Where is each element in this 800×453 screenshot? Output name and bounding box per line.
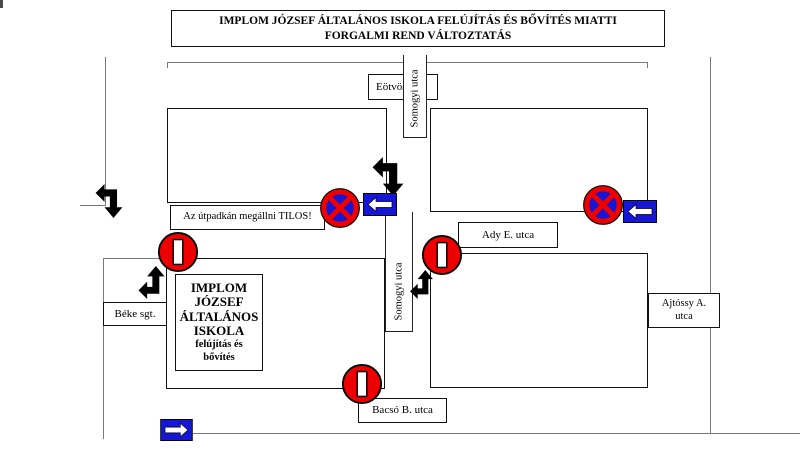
street-label-ady-text: Ady E. utca <box>482 229 534 242</box>
road-line-upperleft-vertical <box>105 57 106 205</box>
turn-arrow-left-down-icon <box>371 157 405 196</box>
no-stopping-sign-icon <box>320 188 360 228</box>
direction-left-sign-icon <box>623 200 657 223</box>
school-label-box: IMPLOM JÓZSEF ÁLTALÁNOS ISKOLA felújítás… <box>175 274 263 371</box>
street-label-ajtossy: Ajtóssy A. utca <box>648 293 720 328</box>
road-line-beke-vertical <box>103 258 104 439</box>
page-title-text: IMPLOM JÓZSEF ÁLTALÁNOS ISKOLA FELÚJÍTÁS… <box>186 14 650 44</box>
direction-left-sign-icon <box>363 193 397 216</box>
direction-right-sign-icon <box>160 419 193 441</box>
road-somogyi-lower-label: Somogyi utca <box>385 250 413 332</box>
no-entry-sign-icon <box>421 234 463 276</box>
street-label-somogyi-upper-text: Somogyi utca <box>410 69 421 127</box>
road-line-bottom <box>193 433 800 434</box>
street-label-ajtossy-line2: utca <box>675 311 693 323</box>
road-somogyi-upper-label: Somogyi utca <box>403 58 427 138</box>
school-sub-line2: bővítés <box>203 352 235 365</box>
turn-arrow-left-down-icon <box>95 184 123 218</box>
no-entry-sign-icon <box>341 363 383 405</box>
no-stopping-sign-icon <box>583 185 623 225</box>
road-line-top-tick-left <box>167 62 168 68</box>
page-title: IMPLOM JÓZSEF ÁLTALÁNOS ISKOLA FELÚJÍTÁS… <box>171 10 665 47</box>
no-entry-sign-icon <box>157 231 199 273</box>
notice-label-no-stopping: Az útpadkán megállni TILOS! <box>170 205 325 230</box>
street-label-ajtossy-line1: Ajtóssy A. <box>662 298 706 310</box>
street-label-beke: Béke sgt. <box>103 302 167 326</box>
school-name-line3: ÁLTALÁNOS <box>180 310 259 325</box>
road-line-ajtossy-upper <box>710 57 711 293</box>
notice-text: Az útpadkán megállni TILOS! <box>183 211 311 223</box>
street-label-somogyi-lower-text: Somogyi utca <box>394 262 405 320</box>
traffic-change-map: IMPLOM JÓZSEF ÁLTALÁNOS ISKOLA FELÚJÍTÁS… <box>0 0 800 453</box>
corner-mark <box>0 0 3 8</box>
school-sub-line1: felújítás és <box>195 339 243 352</box>
school-name-line1: IMPLOM <box>191 281 247 296</box>
road-line-ajtossy-lower <box>710 328 711 433</box>
street-label-beke-text: Béke sgt. <box>115 308 156 321</box>
street-label-bacso-text: Bacsó B. utca <box>372 404 433 417</box>
street-label-ady: Ady E. utca <box>458 222 558 248</box>
school-name-line4: ISKOLA <box>194 324 245 339</box>
school-name-line2: JÓZSEF <box>194 295 243 310</box>
road-line-top-tick-right <box>647 62 648 68</box>
